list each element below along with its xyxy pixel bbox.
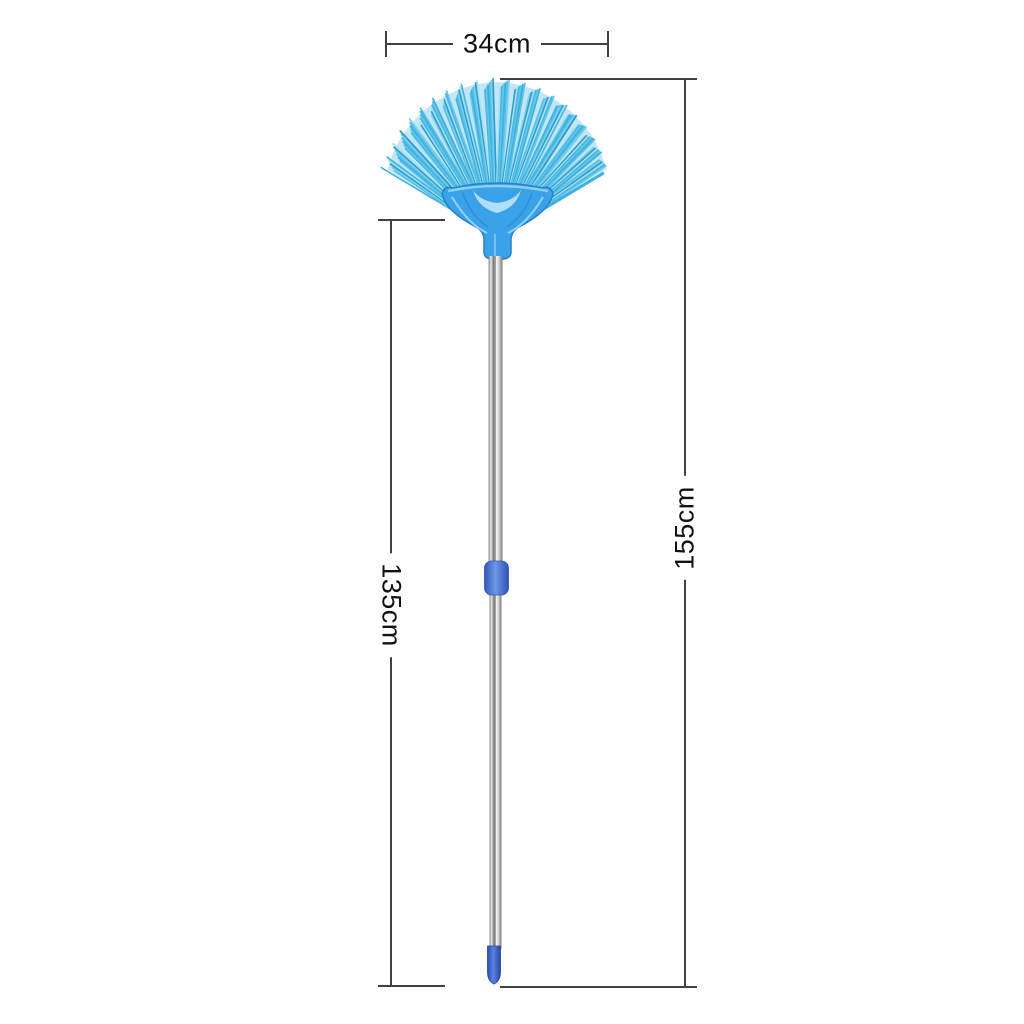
product-dimension-image: 34cm 135cm 155cm	[0, 0, 1024, 1024]
handle-length-bottom-tick	[378, 985, 445, 987]
overall-length-label: 155cm	[672, 476, 699, 580]
pole-seam	[495, 256, 496, 949]
overall-length-bottom-line	[500, 986, 697, 988]
width-dimension-label: 34cm	[453, 31, 541, 58]
overall-length-top-line	[500, 78, 697, 80]
width-dimension-right-tick	[607, 31, 609, 57]
handle-length-label: 135cm	[378, 553, 405, 657]
width-dimension: 34cm	[385, 31, 609, 57]
overall-length-dimension: 155cm	[500, 78, 697, 988]
handle-tip-cap	[488, 946, 501, 984]
handle-length-dimension: 135cm	[378, 219, 445, 987]
handle-length-top-tick	[378, 219, 445, 221]
